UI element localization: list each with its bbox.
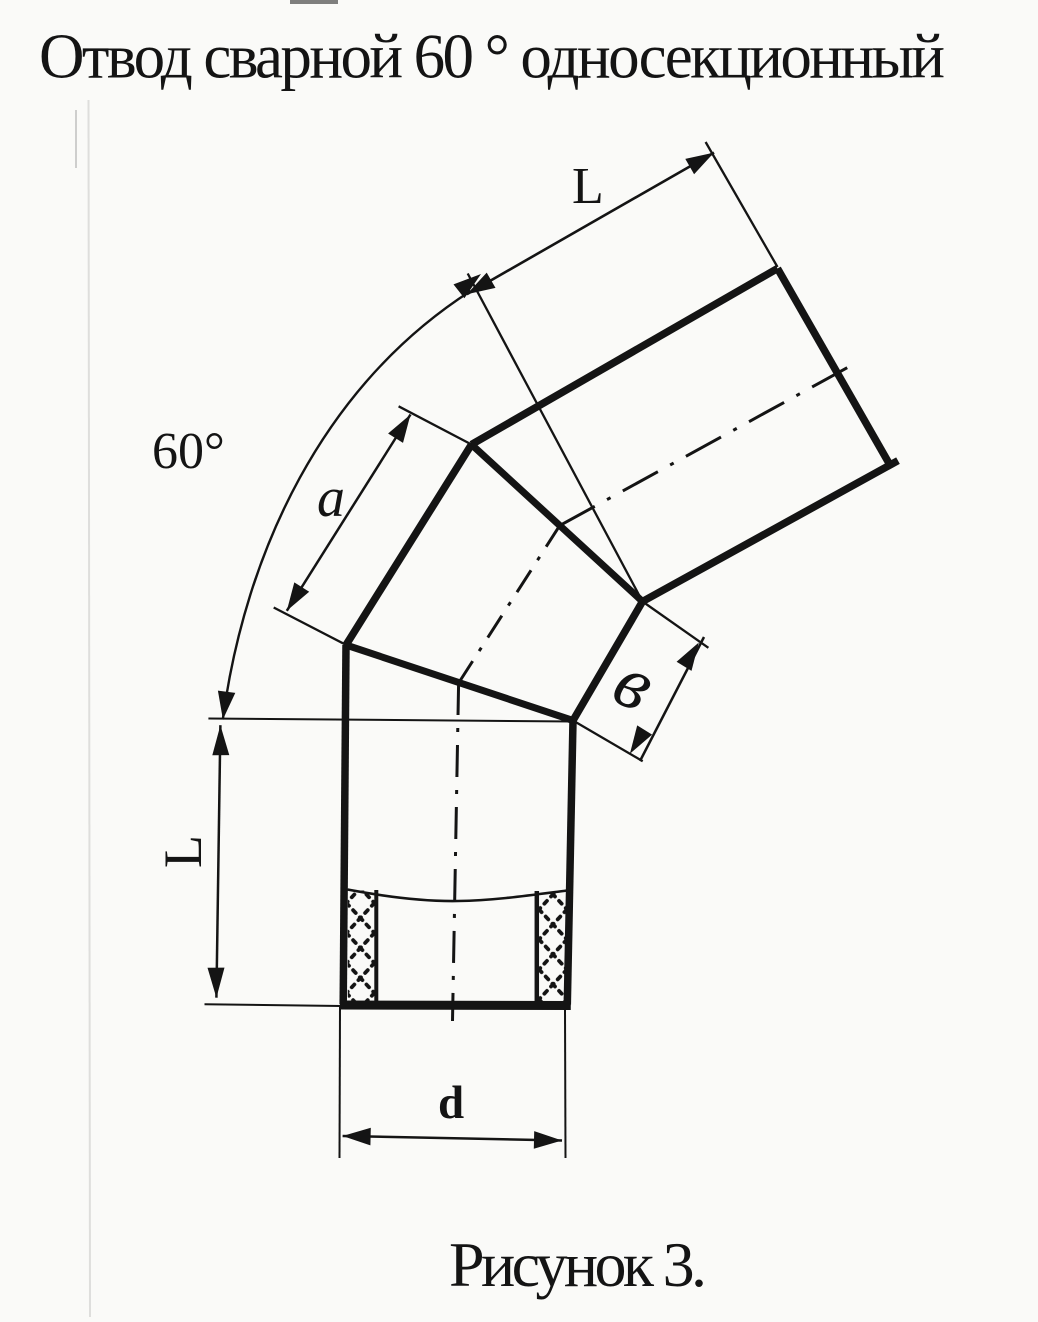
- svg-text:L: L: [153, 835, 213, 868]
- svg-text:L: L: [572, 158, 604, 215]
- svg-text:Отвод сварной 60 ° односекцион: Отвод сварной 60 ° односекционный: [39, 22, 945, 92]
- svg-text:a: a: [317, 467, 345, 529]
- svg-text:d: d: [438, 1077, 464, 1129]
- svg-text:Рисунок 3.: Рисунок 3.: [449, 1229, 707, 1300]
- svg-text:60°: 60°: [152, 423, 225, 480]
